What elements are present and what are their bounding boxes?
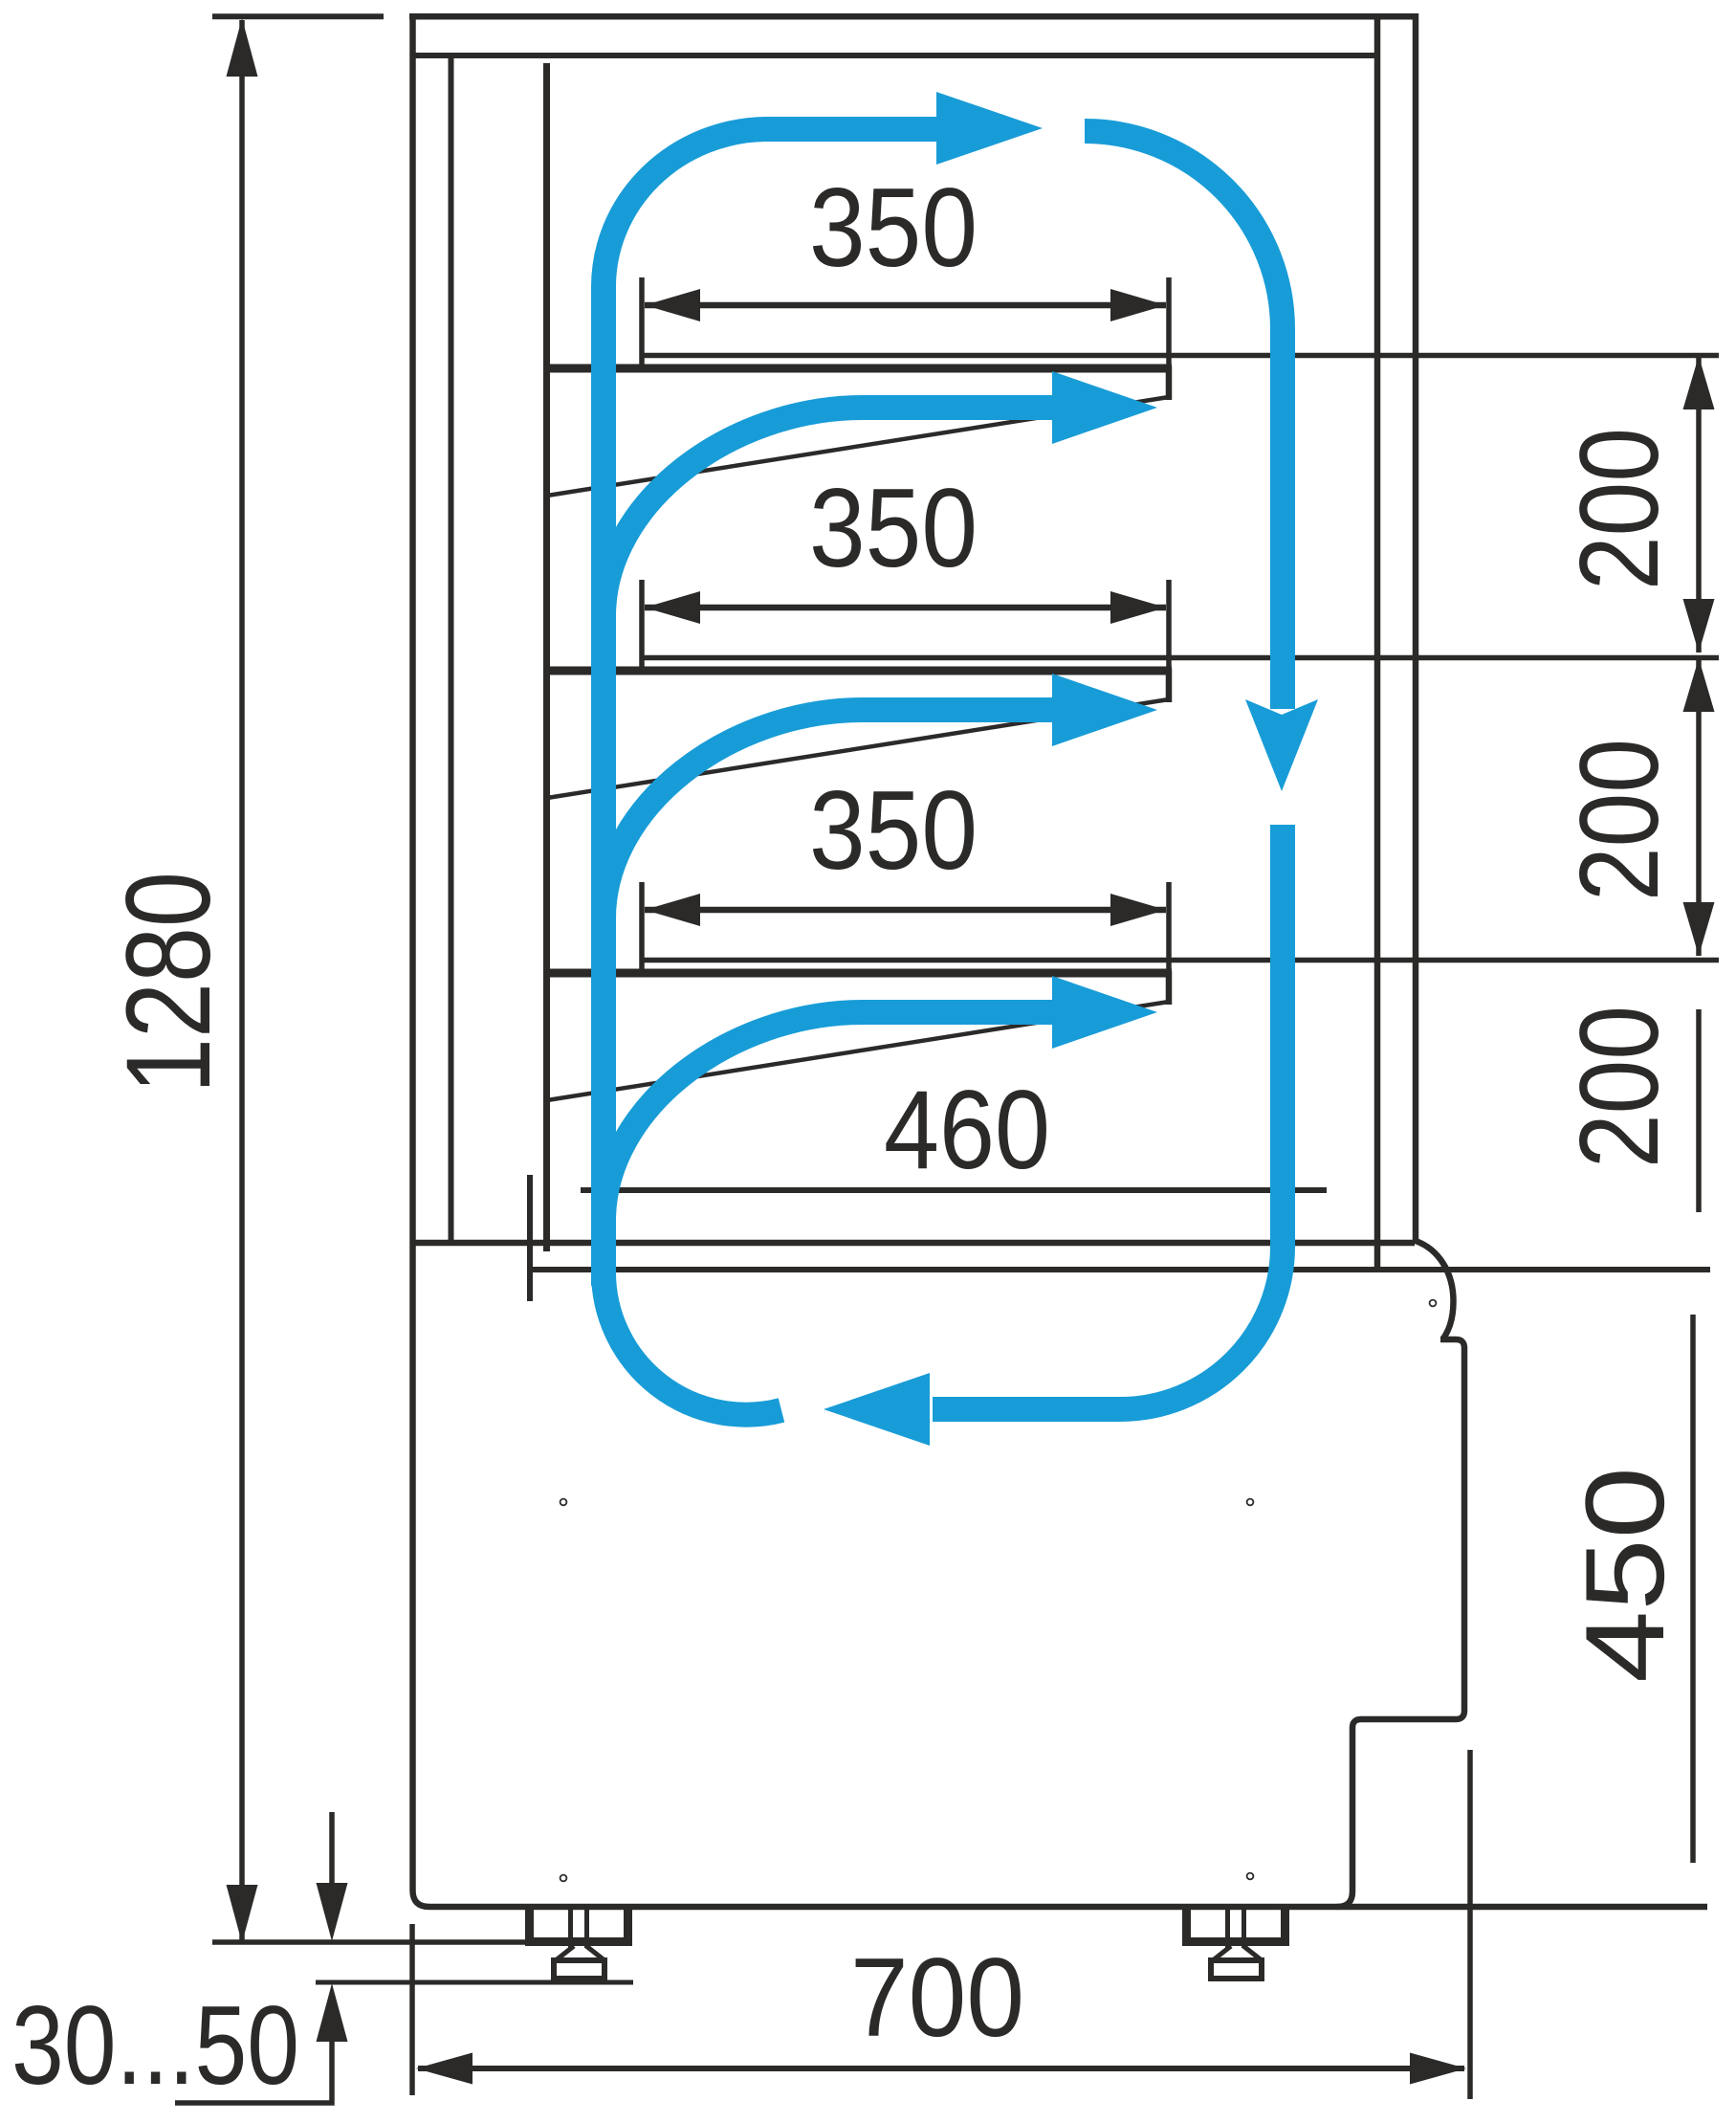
svg-text:700: 700 (850, 1935, 1024, 2060)
svg-text:200: 200 (1556, 428, 1681, 590)
svg-text:460: 460 (884, 1067, 1050, 1192)
svg-text:350: 350 (809, 767, 978, 893)
svg-text:1280: 1280 (102, 872, 235, 1094)
svg-text:200: 200 (1556, 739, 1681, 901)
svg-text:350: 350 (809, 465, 978, 590)
svg-text:350: 350 (809, 165, 978, 290)
svg-text:200: 200 (1556, 1006, 1681, 1168)
svg-text:30...50: 30...50 (11, 1982, 299, 2108)
svg-text:450: 450 (1562, 1467, 1687, 1683)
